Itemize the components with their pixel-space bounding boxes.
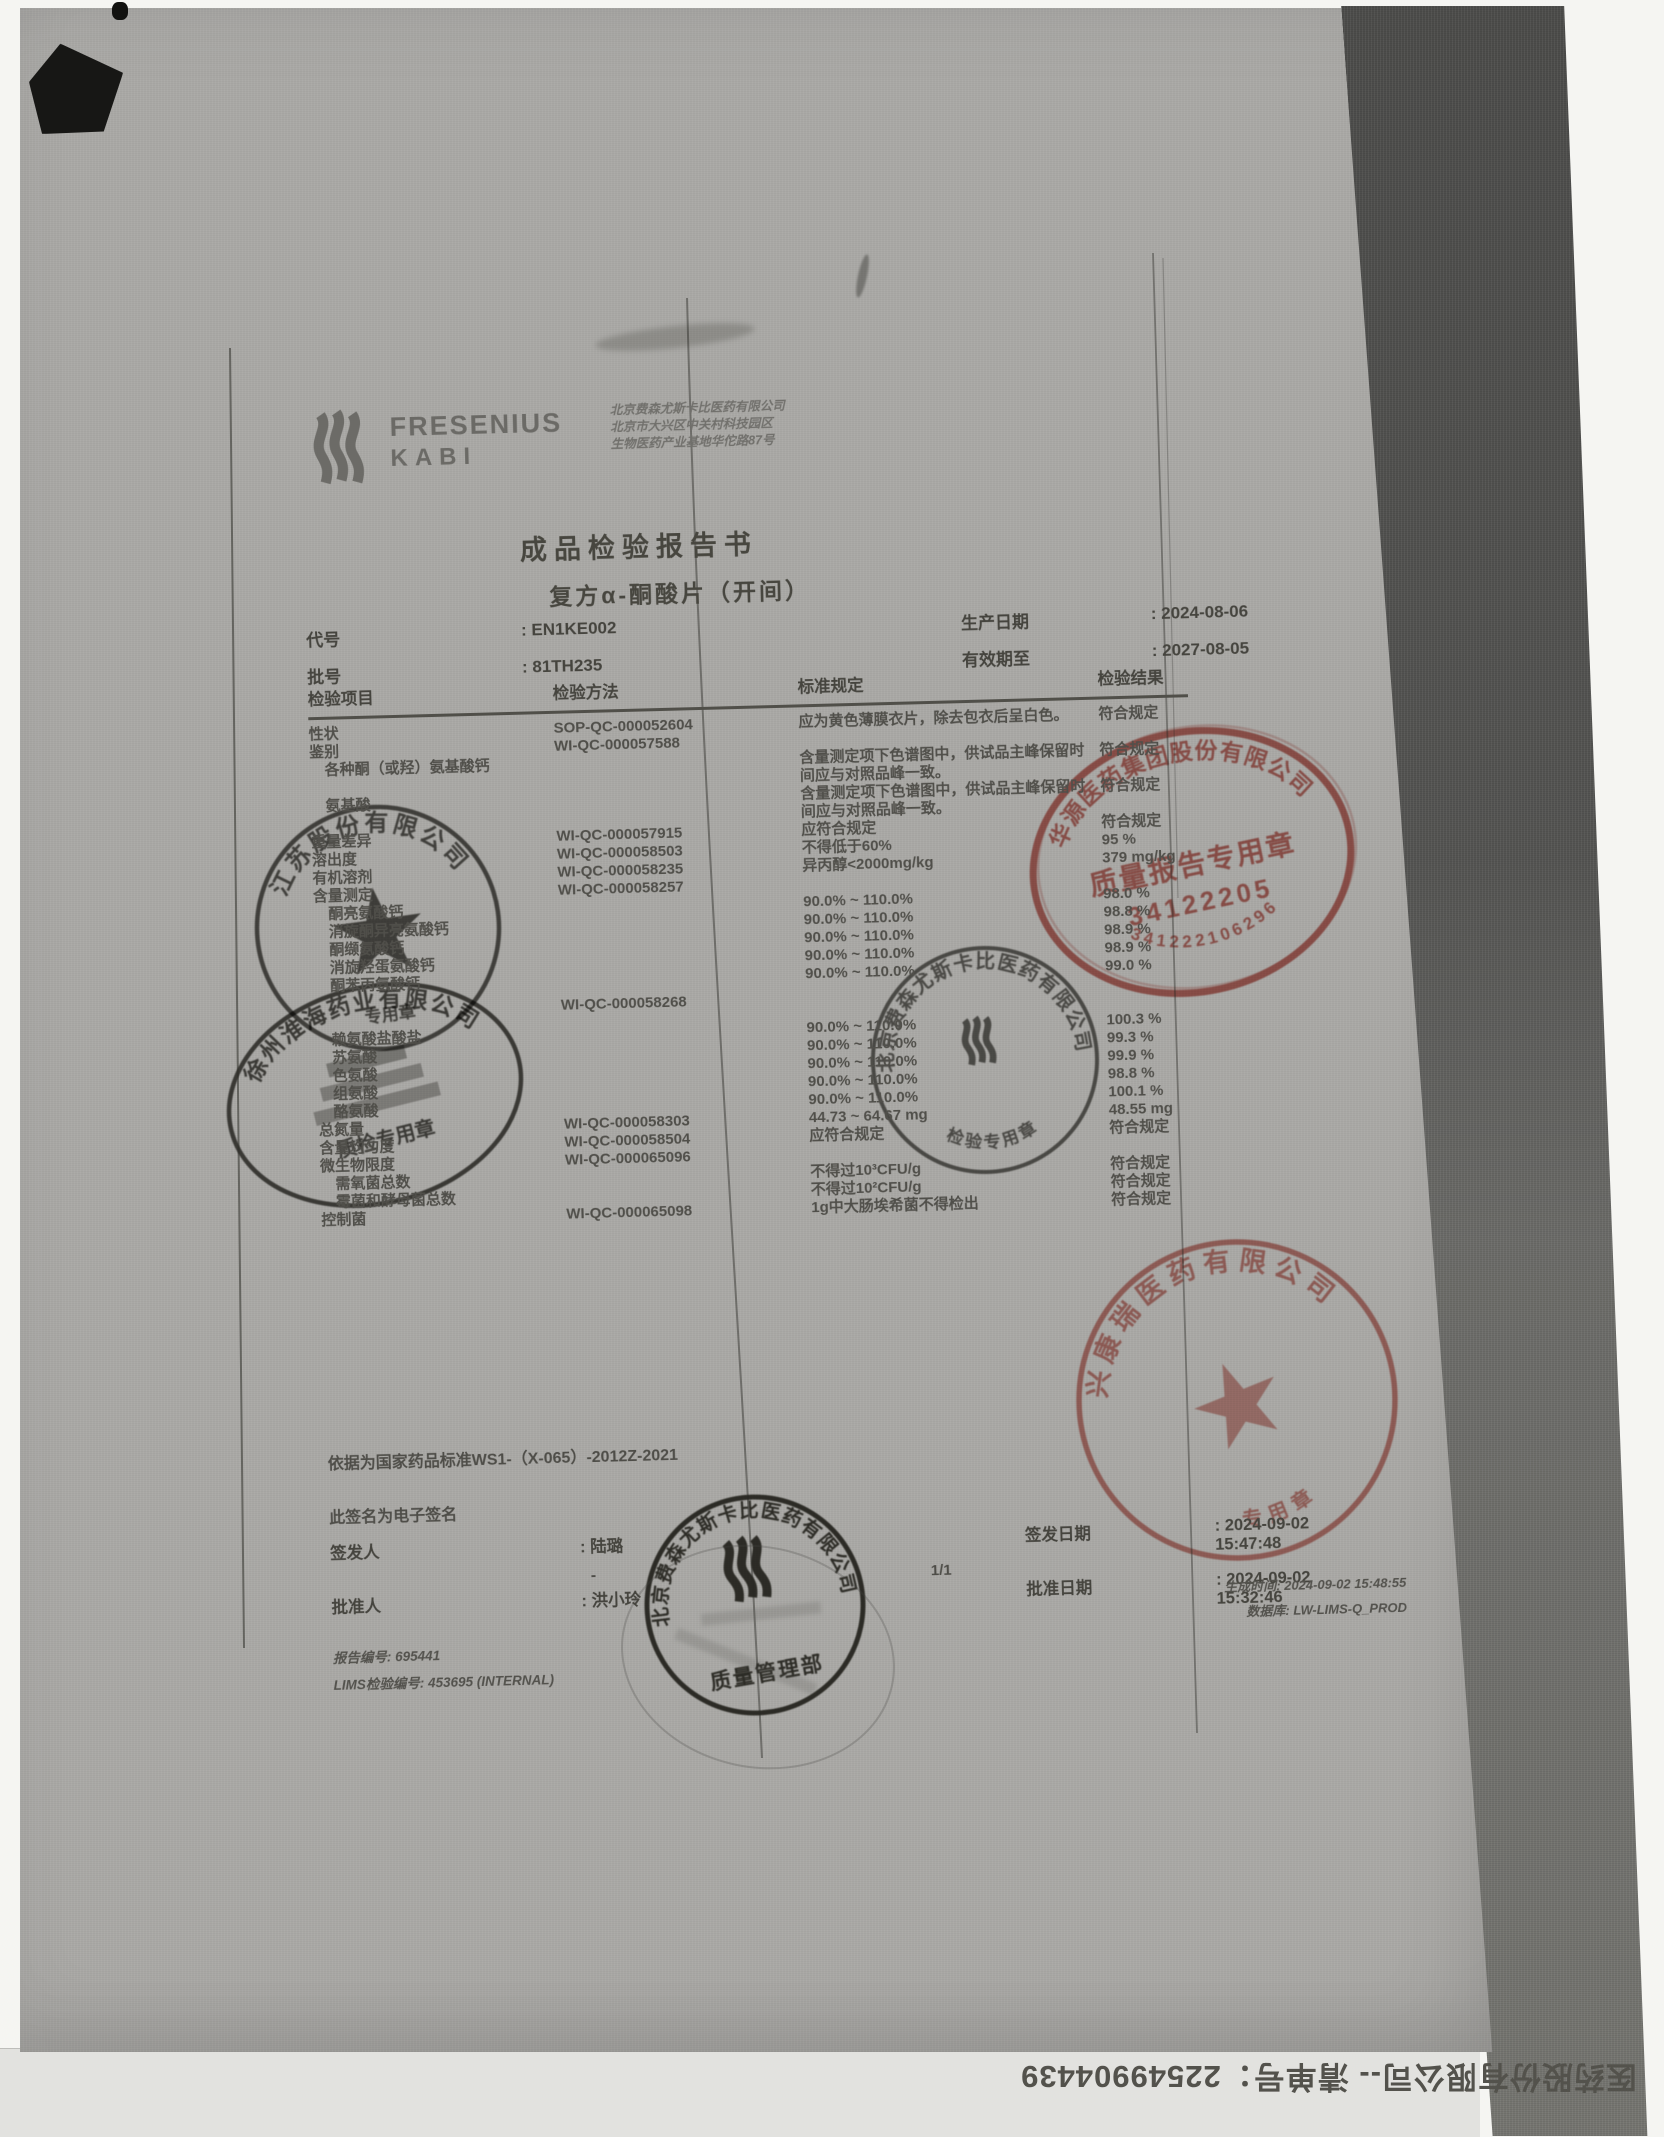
col-header-method: 检验方法: [552, 673, 798, 703]
mfg-date-value: : 2024-08-06: [1151, 602, 1249, 642]
col-header-result: 检验结果: [1097, 661, 1283, 690]
page-number: 1/1: [931, 1562, 952, 1580]
cell-result: 符合规定: [1100, 773, 1286, 814]
table-body: 性状 SOP-QC-000052604 应为黄色薄膜衣片，除去包衣后呈白色。 符…: [308, 701, 1296, 1230]
col-header-item: 检验项目: [307, 680, 553, 710]
mfg-date-label: 生产日期: [961, 604, 1152, 646]
cell-method: WI-QC-000058268: [561, 990, 806, 1014]
issuer-label: 签发人: [330, 1533, 581, 1594]
cell-result: 符合规定: [1099, 737, 1285, 778]
brand-block: FRESENIUS KABI 北京费森尤斯卡比医药有限公司 北京市大兴区中关村科…: [303, 392, 787, 491]
esignature-note: 此签名为电子签名: [329, 1501, 458, 1528]
generation-info: 生成时间: 2024-09-02 15:48:55 数据库: LW-LIMS-Q…: [1096, 1570, 1407, 1628]
issue-date-value: : 2024-09-02 15:47:48: [1214, 1514, 1315, 1571]
issuer-dash-mark: -: [591, 1567, 597, 1585]
fresenius-waves-icon: [303, 403, 371, 491]
cell-item: [316, 997, 561, 1021]
company-address: 北京费森尤斯卡比医药有限公司 北京市大兴区中关村科技园区 生物医药产业基地华佗路…: [609, 392, 785, 454]
scanned-report-page: { "colors": { "paper": "#a9a8a5", "stamp…: [0, 0, 1664, 2136]
code-label: 代号: [306, 621, 522, 664]
standard-basis: 依据为国家药品标准WS1-（X-065）-2012Z-2021: [327, 1441, 678, 1474]
report-ids: 报告编号: 695441 LIMS检验编号: 453695 (INTERNAL): [333, 1639, 555, 1699]
left-border-line: [230, 348, 244, 1648]
cell-standard: [806, 982, 1106, 1008]
company-line-3: 生物医药产业基地华佗路87号: [611, 432, 786, 454]
issue-date-label: 签发日期: [1025, 1517, 1216, 1576]
bottom-reversed-text: 医药股份有限公司-- 清单号：22549904439: [975, 2056, 1637, 2102]
brand-word-fresenius: FRESENIUS: [389, 409, 562, 441]
brand-wordmark: FRESENIUS KABI: [389, 397, 563, 470]
speck-dot: [112, 2, 128, 20]
cell-result: [1105, 978, 1290, 1001]
report-paper: FRESENIUS KABI 北京费森尤斯卡比医药有限公司 北京市大兴区中关村科…: [20, 8, 1530, 2052]
results-table: 检验项目 检验方法 标准规定 检验结果 性状 SOP-QC-000052604 …: [307, 661, 1296, 1230]
report-document: FRESENIUS KABI 北京费森尤斯卡比医药有限公司 北京市大兴区中关村科…: [275, 377, 1320, 1743]
approver-value: : 洪小玲: [581, 1576, 1027, 1642]
report-title: 成品检验报告书: [278, 516, 999, 574]
lims-number: LIMS检验编号: 453695 (INTERNAL): [333, 1666, 554, 1699]
cell-result: 符合规定: [1111, 1187, 1296, 1210]
brand-word-kabi: KABI: [390, 442, 563, 471]
